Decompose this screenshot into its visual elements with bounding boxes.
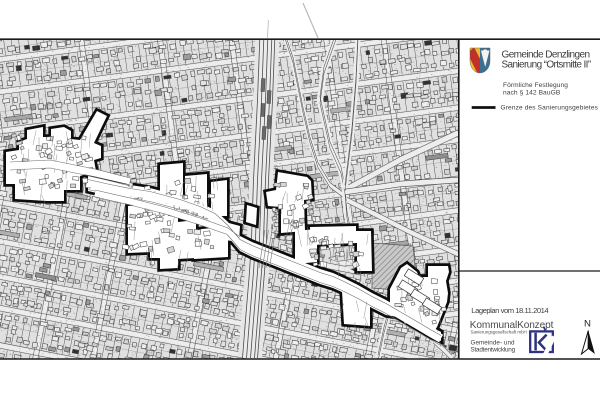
svg-text:N: N (584, 318, 591, 329)
svg-text:Stadtentwicklung: Stadtentwicklung (471, 346, 516, 353)
svg-text:Grenze des Sanierungsgebietes: Grenze des Sanierungsgebietes (501, 104, 599, 111)
svg-text:Gemeinde- und: Gemeinde- und (471, 339, 516, 346)
svg-text:nach § 142 BauGB: nach § 142 BauGB (503, 89, 561, 96)
svg-text:Lageplan vom 18.11.2014: Lageplan vom 18.11.2014 (471, 306, 548, 315)
svg-text:Förmliche Festlegung: Förmliche Festlegung (503, 82, 568, 89)
svg-text:Sanierung “Ortsmitte II”: Sanierung “Ortsmitte II” (502, 59, 591, 70)
svg-text:Sanierungsgesellschaft mbH: Sanierungsgesellschaft mbH (471, 330, 527, 335)
